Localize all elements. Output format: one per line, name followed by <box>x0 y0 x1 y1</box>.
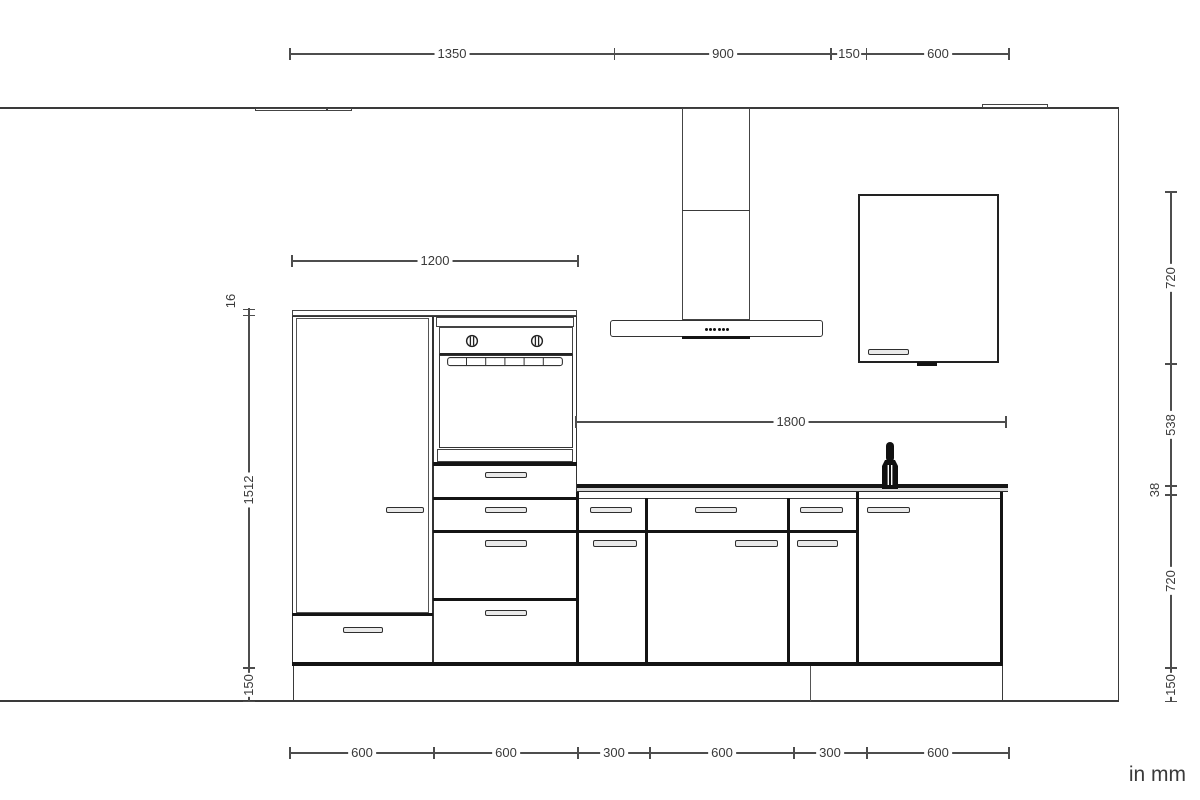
hood-control-dots <box>718 328 721 331</box>
dim-tick <box>1005 416 1007 428</box>
oven-knob-icon <box>465 334 479 348</box>
oven-unit-drawer-handle <box>485 540 527 547</box>
ceiling-trim-tab-left-2 <box>327 108 352 111</box>
dim-tick <box>289 48 291 60</box>
faucet-icon <box>878 438 902 490</box>
dim-label: 900 <box>709 47 737 61</box>
dim-label: 300 <box>816 746 844 760</box>
dim-label: 1350 <box>435 47 470 61</box>
dim-label: 600 <box>348 746 376 760</box>
base-drawer-handle <box>593 540 637 547</box>
base-unit-divider <box>787 498 790 666</box>
plinth-side-line-right <box>1002 666 1003 701</box>
base-unit-divider <box>1000 492 1003 666</box>
hood-control-dots <box>709 328 712 331</box>
dim-tick <box>577 255 579 267</box>
dim-tick <box>614 48 616 60</box>
kitchen-elevation-drawing: 1350 900 150 600 1200 1800 600 600 300 6… <box>0 0 1200 800</box>
dim-label: 538 <box>1164 411 1178 439</box>
base-drawer-handle <box>797 540 838 547</box>
dim-tick <box>243 701 255 703</box>
dim-tick <box>575 416 577 428</box>
ceiling-trim-tab-right <box>982 104 1048 108</box>
oven-knob-icon <box>530 334 544 348</box>
dim-tick <box>1165 667 1177 669</box>
base-carcass-top-line <box>577 498 1003 499</box>
dim-tick <box>289 747 291 759</box>
oven-unit-drawer-handle <box>485 472 527 478</box>
oven-unit-front-divider <box>433 497 577 500</box>
ceiling-wall-line <box>0 107 1119 109</box>
dim-tick <box>243 315 255 317</box>
dim-line-top <box>290 53 1009 54</box>
dim-tick <box>291 255 293 267</box>
dim-label: 150 <box>242 673 256 697</box>
floor-line <box>0 700 1119 702</box>
dim-tick <box>433 747 435 759</box>
oven-control-panel <box>439 327 573 355</box>
dim-label: 150 <box>837 47 861 61</box>
hood-control-dots <box>726 328 729 331</box>
dim-label: 1800 <box>774 415 809 429</box>
oven-door <box>439 355 573 448</box>
dim-tick <box>243 667 255 669</box>
dim-label: 600 <box>924 47 952 61</box>
dim-tick <box>1008 747 1010 759</box>
tall-cabinet-door <box>296 318 429 613</box>
wall-cabinet-handle <box>868 349 909 355</box>
dim-label: 600 <box>492 746 520 760</box>
base-unit-divider <box>856 492 859 666</box>
wall-cabinet-underlight-tab <box>917 362 937 366</box>
plinth-side-line-left <box>293 666 294 701</box>
tall-cabinet-door-handle <box>386 507 424 513</box>
oven-unit-front-divider <box>433 530 577 533</box>
base-door-handle <box>735 540 778 547</box>
hood-control-dots <box>705 328 708 331</box>
dim-label: 720 <box>1164 264 1178 292</box>
units-note: in mm <box>1114 763 1186 787</box>
countertop <box>577 484 1008 492</box>
dim-tick <box>1008 48 1010 60</box>
base-drawer-handle <box>590 507 632 513</box>
dim-tick <box>1165 485 1177 487</box>
dim-label: 16 <box>224 291 238 311</box>
tall-cabinet-front-divider <box>292 613 433 616</box>
oven-unit-drawer-handle <box>485 610 527 616</box>
dim-tick <box>1165 363 1177 365</box>
oven-unit-drawer-handle <box>485 507 527 513</box>
tall-cabinet-drawer-handle <box>343 627 383 633</box>
oven-unit-front-divider <box>433 598 577 601</box>
sink-unit-door-handle <box>867 507 910 513</box>
base-unit-divider <box>645 498 648 666</box>
dim-tick <box>830 48 832 60</box>
dim-label: 38 <box>1148 480 1162 500</box>
ceiling-trim-tab-left-1 <box>255 108 327 111</box>
dim-label: 150 <box>1164 673 1178 697</box>
oven-handle-vent-strip <box>447 357 563 367</box>
dim-tick <box>577 747 579 759</box>
oven-top-filler-strip <box>436 317 574 327</box>
base-drawer-handle <box>695 507 737 513</box>
dim-tick <box>793 747 795 759</box>
dim-label: 600 <box>924 746 952 760</box>
hood-underside-bar <box>682 336 750 339</box>
dim-tick <box>649 747 651 759</box>
right-wall-line <box>1118 107 1120 701</box>
dim-label: 720 <box>1164 567 1178 595</box>
dim-label: 600 <box>708 746 736 760</box>
plinth-joint-line <box>810 666 811 701</box>
dim-label: 1512 <box>242 473 256 508</box>
base-drawer-handle <box>800 507 843 513</box>
dim-tick <box>1165 701 1177 703</box>
dim-label: 300 <box>600 746 628 760</box>
dim-tick <box>866 747 868 759</box>
dim-tick <box>866 48 868 60</box>
wall-cabinet <box>858 194 999 363</box>
base-unit-divider <box>576 492 579 666</box>
base-run-bottom-edge <box>292 662 1003 666</box>
hood-control-dots <box>722 328 725 331</box>
dim-label: 1200 <box>418 254 453 268</box>
dim-tick <box>243 309 255 311</box>
dim-tick <box>1165 191 1177 193</box>
hood-duct-joint-line <box>682 210 750 211</box>
dim-tick <box>1165 494 1177 496</box>
oven-bottom-spacer-band <box>437 449 573 462</box>
oven-unit-front-divider <box>433 462 577 466</box>
hood-body <box>610 320 823 337</box>
hood-chimney-duct <box>682 108 750 320</box>
base-drawer-row-divider <box>577 530 857 533</box>
